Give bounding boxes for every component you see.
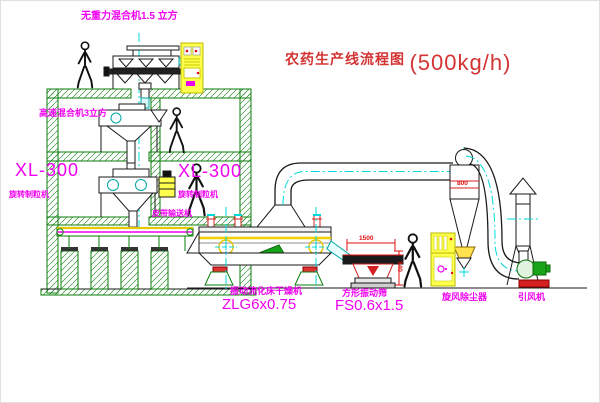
induced-draft-fan [517, 260, 550, 287]
exhaust-duct [275, 163, 453, 205]
drawing-title-text: 农药生产线流程图 [285, 51, 405, 67]
person-ground [405, 234, 422, 286]
label-granulator-left-model: XL-300 [15, 161, 79, 179]
label-fan: 引风机 [518, 293, 545, 302]
dim-screen-height: 340 [396, 261, 403, 272]
label-granulator-mid-name: 旋转制粒机 [178, 191, 218, 199]
label-screen-model: FS0.6x1.5 [335, 298, 403, 313]
person-roof [78, 42, 92, 87]
label-belt-conveyor: 皮带输送机 [152, 210, 192, 218]
label-top-mixer: 无重力混合机1.5 立方 [81, 12, 178, 22]
drawing-title: 农药生产线流程图 (500kg/h) [285, 49, 511, 76]
label-dryer-model: ZLG6x0.75 [222, 297, 296, 312]
vibrating-screen [343, 239, 403, 288]
label-granulator-left-name: 旋转制粒机 [9, 191, 49, 199]
label-high-speed-mixer: 高速混合机3立方 [39, 109, 107, 118]
foundation-piers [61, 247, 168, 289]
label-dryer-name: 振动流化床干燥机 [230, 287, 302, 296]
label-cyclone: 旋风除尘器 [442, 293, 487, 302]
control-cabinet-1 [181, 43, 203, 93]
person-level2 [170, 108, 184, 152]
fluid-bed-dryer [187, 205, 353, 289]
dim-cyclone-diameter: 800 [457, 181, 468, 188]
label-granulator-mid-model: XL-300 [178, 162, 242, 180]
dim-screen-length: 1500 [359, 236, 373, 243]
pesticide-line-flow-drawing: 农药生产线流程图 (500kg/h) 无重力混合机1.5 立方 高速混合机3立方… [0, 0, 600, 403]
drawing-title-capacity: (500kg/h) [409, 50, 511, 75]
dryer-legs [205, 267, 323, 285]
control-cabinet-2 [431, 233, 455, 286]
